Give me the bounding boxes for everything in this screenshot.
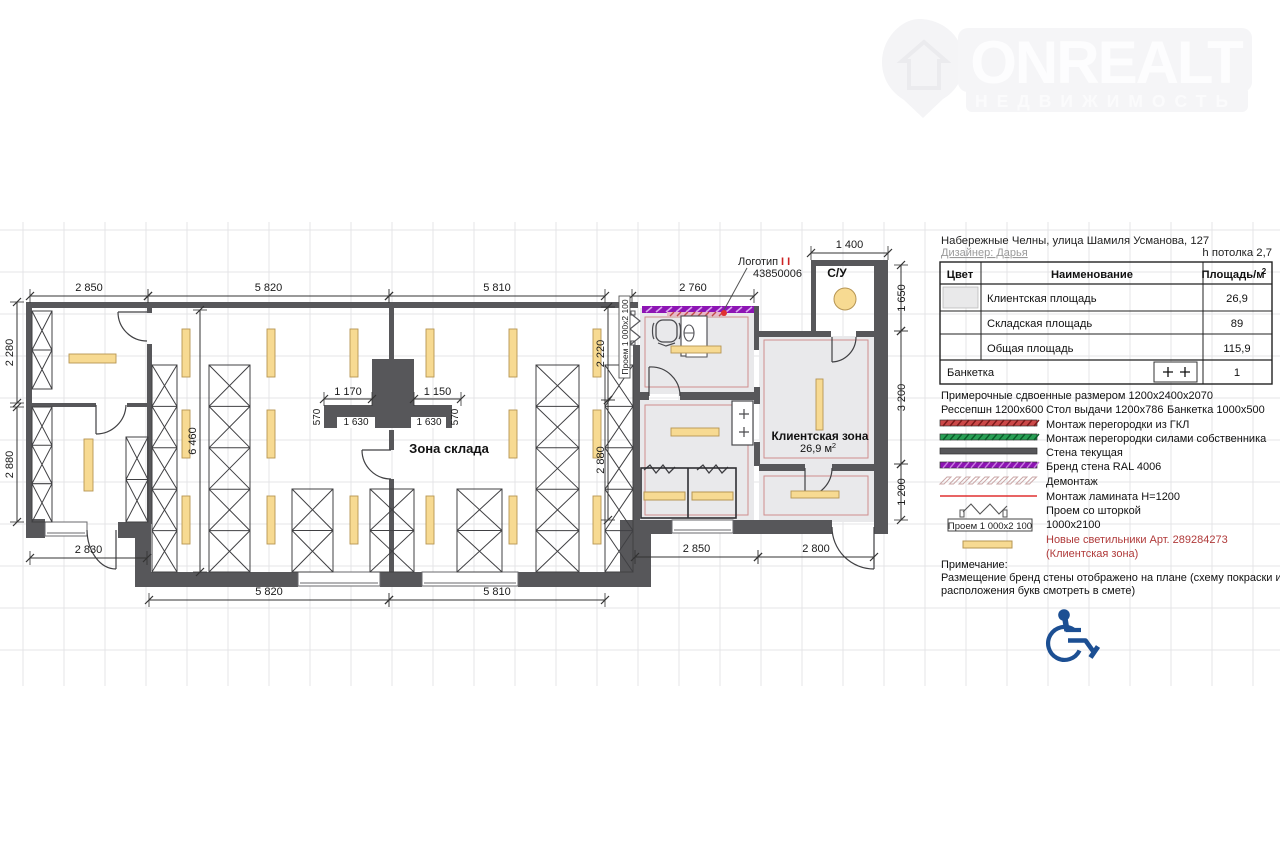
svg-text:ONREALT: ONREALT: [970, 29, 1243, 96]
svg-text:5 810: 5 810: [483, 586, 511, 598]
svg-text:1 650: 1 650: [896, 284, 908, 312]
svg-text:5 820: 5 820: [255, 282, 283, 294]
svg-text:Новые светильники Арт. 2892842: Новые светильники Арт. 289284273: [1046, 534, 1228, 546]
svg-text:2 880: 2 880: [4, 451, 16, 479]
svg-text:расположения букв смотреть в с: расположения букв смотреть в смете): [941, 585, 1135, 597]
svg-text:Проем 1 000х2 100: Проем 1 000х2 100: [948, 521, 1032, 532]
svg-text:5 810: 5 810: [483, 282, 511, 294]
svg-text:1 200: 1 200: [896, 478, 908, 506]
svg-text:Примерочные сдвоенные размером: Примерочные сдвоенные размером 1200х2400…: [941, 390, 1213, 402]
svg-text:1: 1: [1234, 367, 1240, 379]
svg-text:2: 2: [1262, 267, 1267, 276]
svg-text:2 760: 2 760: [679, 282, 707, 294]
svg-text:Бренд стена RAL 4006: Бренд стена RAL 4006: [1046, 461, 1161, 473]
svg-text:2: 2: [832, 441, 836, 450]
svg-text:2 280: 2 280: [4, 339, 16, 367]
svg-text:Демонтаж: Демонтаж: [1046, 476, 1098, 488]
svg-text:26,9: 26,9: [1226, 293, 1248, 305]
svg-text:Клиентская зона: Клиентская зона: [772, 429, 869, 443]
svg-text:6 460: 6 460: [187, 427, 199, 455]
svg-text:3 200: 3 200: [896, 384, 908, 412]
svg-text:Логотип: Логотип: [738, 256, 778, 268]
svg-text:Примечание:: Примечание:: [941, 559, 1008, 571]
svg-text:(Клиентская зона): (Клиентская зона): [1046, 548, 1138, 560]
svg-text:43850006: 43850006: [753, 268, 802, 280]
svg-text:1000х2100: 1000х2100: [1046, 519, 1100, 531]
svg-text:Банкетка: Банкетка: [947, 367, 995, 379]
svg-text:Наименование: Наименование: [1051, 269, 1133, 281]
svg-text:Монтаж перегородки из ГКЛ: Монтаж перегородки из ГКЛ: [1046, 419, 1189, 431]
svg-text:26,9 м: 26,9 м: [800, 443, 832, 455]
svg-text:Площадь/м: Площадь/м: [1202, 269, 1265, 281]
svg-text:Рессепшн 1200х600: Рессепшн 1200х600: [941, 404, 1043, 416]
svg-text:2 830: 2 830: [75, 544, 103, 556]
svg-text:Размещение бренд стены отображ: Размещение бренд стены отображено на пла…: [941, 572, 1280, 584]
svg-text:1 630: 1 630: [343, 417, 368, 428]
svg-text:Клиентская площадь: Клиентская площадь: [987, 293, 1097, 305]
svg-text:Складская площадь: Складская площадь: [987, 318, 1092, 330]
svg-text:1 170: 1 170: [334, 386, 362, 398]
svg-text:2 800: 2 800: [802, 543, 830, 555]
svg-text:С/У: С/У: [827, 266, 847, 280]
svg-text:2 850: 2 850: [75, 282, 103, 294]
svg-text:Стена текущая: Стена текущая: [1046, 447, 1123, 459]
svg-text:h потолка 2,7: h потолка 2,7: [1202, 247, 1272, 259]
svg-text:Проем 1 000х2 100: Проем 1 000х2 100: [620, 299, 630, 375]
svg-text:1 150: 1 150: [424, 386, 452, 398]
svg-text:2 880: 2 880: [595, 446, 607, 474]
svg-text:Стол выдачи 1200х786: Стол выдачи 1200х786: [1046, 404, 1164, 416]
svg-text:Набережные Челны, улица Шамиля: Набережные Челны, улица Шамиля Усманова,…: [941, 235, 1209, 247]
svg-text:570: 570: [312, 408, 323, 425]
svg-text:115,9: 115,9: [1223, 343, 1250, 355]
svg-text:Дизайнер: Дарья: Дизайнер: Дарья: [941, 247, 1028, 259]
svg-text:Проем со шторкой: Проем со шторкой: [1046, 505, 1141, 517]
svg-text:Монтаж перегородки силами собс: Монтаж перегородки силами собственника: [1046, 433, 1267, 445]
svg-text:Цвет: Цвет: [947, 269, 974, 281]
svg-text:Общая площадь: Общая площадь: [987, 343, 1074, 355]
svg-text:I I: I I: [781, 256, 790, 268]
svg-text:89: 89: [1231, 318, 1243, 330]
svg-text:2 850: 2 850: [683, 543, 711, 555]
svg-text:5 820: 5 820: [255, 586, 283, 598]
svg-text:2 220: 2 220: [595, 340, 607, 368]
svg-text:1 400: 1 400: [836, 239, 864, 251]
svg-text:Зона склада: Зона склада: [409, 441, 489, 456]
svg-text:Монтаж ламината Н=1200: Монтаж ламината Н=1200: [1046, 491, 1180, 503]
svg-text:Банкетка 1000х500: Банкетка 1000х500: [1167, 404, 1265, 416]
svg-text:НЕДВИЖИМОСТЬ: НЕДВИЖИМОСТЬ: [975, 91, 1237, 111]
svg-text:1 630: 1 630: [416, 417, 441, 428]
svg-text:570: 570: [450, 408, 461, 425]
